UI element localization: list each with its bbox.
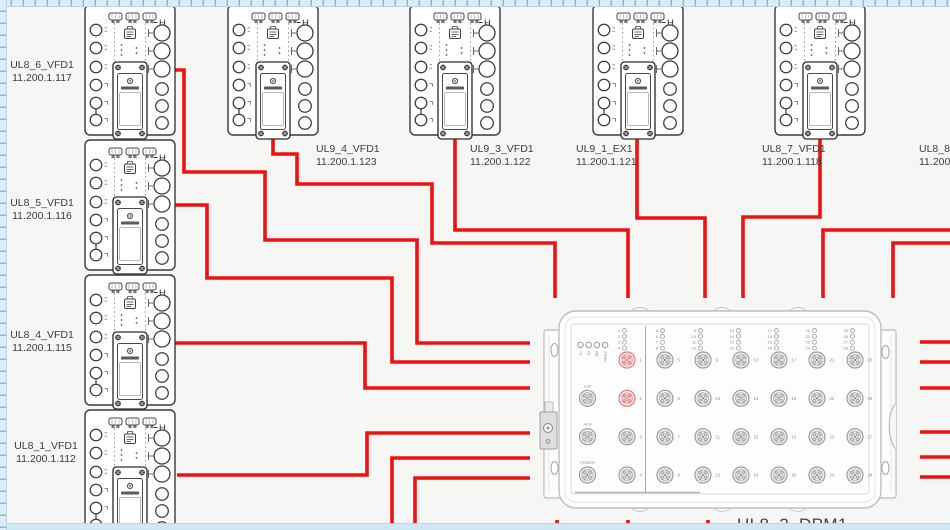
port-circle [780, 79, 792, 91]
svg-text:25: 25 [844, 328, 849, 333]
svg-text:FAULT: FAULT [603, 350, 607, 361]
cable[interactable] [743, 136, 820, 298]
port-circle [415, 97, 427, 109]
svg-text:P1: P1 [579, 351, 583, 355]
svg-text:10: 10 [716, 396, 721, 401]
svg-text:17: 17 [792, 358, 797, 363]
svg-text:17: 17 [768, 328, 773, 333]
svg-text:15: 15 [754, 434, 759, 439]
svg-text:18: 18 [768, 334, 773, 339]
svg-text:21: 21 [830, 358, 835, 363]
port-circle [415, 24, 427, 36]
cable[interactable] [893, 243, 950, 298]
port-circle [598, 61, 610, 73]
diagram-svg: HHHHHHHH P1P2RMFAULT12345678910111213141… [0, 0, 950, 530]
vfd-device[interactable]: H [593, 5, 683, 139]
diagram-canvas: HHHHHHHH P1P2RMFAULT12345678910111213141… [0, 0, 950, 530]
port-circle [90, 97, 102, 109]
port-circle [780, 42, 792, 54]
dpm-device[interactable]: P1P2RMFAULT12345678910111213141516171819… [540, 308, 896, 512]
svg-text:24: 24 [806, 346, 811, 351]
port-circle [598, 114, 610, 126]
svg-text:13: 13 [730, 328, 735, 333]
vfd-device[interactable]: H [85, 275, 175, 409]
port-circle [780, 61, 792, 73]
svg-text:21: 21 [806, 328, 811, 333]
port-circle [90, 214, 102, 226]
cable[interactable] [637, 136, 705, 298]
port-circle [780, 24, 792, 36]
svg-text:16: 16 [730, 346, 735, 351]
svg-text:26: 26 [844, 334, 849, 339]
port-circle [90, 42, 102, 54]
port-circle [90, 331, 102, 343]
ruler-horizontal [0, 0, 950, 7]
cable[interactable] [392, 458, 530, 530]
port-circle [415, 42, 427, 54]
svg-text:25: 25 [868, 358, 873, 363]
svg-text:27: 27 [844, 340, 849, 345]
port-circle [90, 61, 102, 73]
port-circle [90, 502, 102, 514]
cable[interactable] [273, 136, 555, 298]
svg-text:P2: P2 [587, 351, 591, 355]
port-circle [780, 97, 792, 109]
svg-text:14: 14 [754, 396, 759, 401]
port-circle [90, 429, 102, 441]
port-circle [90, 484, 102, 496]
svg-text:10: 10 [692, 334, 697, 339]
port-circle [90, 249, 102, 261]
status-led-p2 [586, 342, 591, 347]
svg-text:20: 20 [768, 346, 773, 351]
scrollbar-horizontal[interactable] [0, 523, 950, 530]
svg-text:28: 28 [868, 473, 873, 478]
port-circle [90, 312, 102, 324]
port-circle [90, 367, 102, 379]
status-led-fault [602, 342, 607, 347]
svg-text:14: 14 [730, 334, 735, 339]
port-circle [415, 79, 427, 91]
svg-text:22: 22 [830, 396, 835, 401]
port-circle [90, 159, 102, 171]
cable[interactable] [823, 230, 950, 298]
port-circle [415, 61, 427, 73]
port-circle [780, 114, 792, 126]
port-circle [233, 61, 245, 73]
svg-text:15: 15 [730, 340, 735, 345]
port-circle [90, 384, 102, 396]
vfd-device[interactable]: H [85, 5, 175, 139]
port-circle [598, 24, 610, 36]
port-circle [233, 24, 245, 36]
svg-text:24: 24 [830, 473, 835, 478]
svg-text:16: 16 [754, 473, 759, 478]
svg-text:13: 13 [754, 358, 759, 363]
vfd-device[interactable]: H [85, 410, 175, 530]
port-circle [415, 114, 427, 126]
port-circle [598, 97, 610, 109]
svg-text:19: 19 [768, 340, 773, 345]
port-circle [598, 42, 610, 54]
port-circle [233, 79, 245, 91]
cable[interactable] [175, 343, 530, 388]
port-circle [90, 114, 102, 126]
port-circle [233, 42, 245, 54]
port-circle [233, 114, 245, 126]
svg-text:20: 20 [792, 473, 797, 478]
port-circle [90, 294, 102, 306]
svg-text:ACA: ACA [584, 422, 592, 427]
svg-text:12: 12 [692, 346, 697, 351]
svg-text:19: 19 [792, 434, 797, 439]
cable[interactable] [455, 136, 628, 298]
port-circle [90, 24, 102, 36]
svg-text:12: 12 [716, 473, 721, 478]
svg-text:23: 23 [806, 340, 811, 345]
port-circle [90, 466, 102, 478]
svg-text:23: 23 [830, 434, 835, 439]
port-circle [233, 97, 245, 109]
vfd-device[interactable]: H [85, 140, 175, 274]
port-circle [90, 349, 102, 361]
svg-text:28: 28 [844, 346, 849, 351]
svg-text:POWER: POWER [580, 460, 595, 465]
cable[interactable] [177, 433, 530, 475]
port-circle [90, 79, 102, 91]
vfd-device[interactable]: H [775, 5, 865, 139]
port-circle [90, 196, 102, 208]
svg-text:18: 18 [792, 396, 797, 401]
status-led-rm [594, 342, 599, 347]
port-circle [90, 232, 102, 244]
svg-text:22: 22 [806, 334, 811, 339]
port-circle [90, 177, 102, 189]
svg-text:27: 27 [868, 434, 873, 439]
vfd-device[interactable]: H [228, 5, 318, 139]
port-circle [90, 447, 102, 459]
vfd-device[interactable]: H [410, 5, 500, 139]
svg-text:26: 26 [868, 396, 873, 401]
ruler-vertical [0, 0, 7, 530]
svg-text:RM: RM [595, 351, 599, 357]
svg-text:11: 11 [716, 434, 721, 439]
status-led-p1 [578, 342, 583, 347]
port-circle [598, 79, 610, 91]
svg-text:V.24: V.24 [584, 383, 592, 388]
